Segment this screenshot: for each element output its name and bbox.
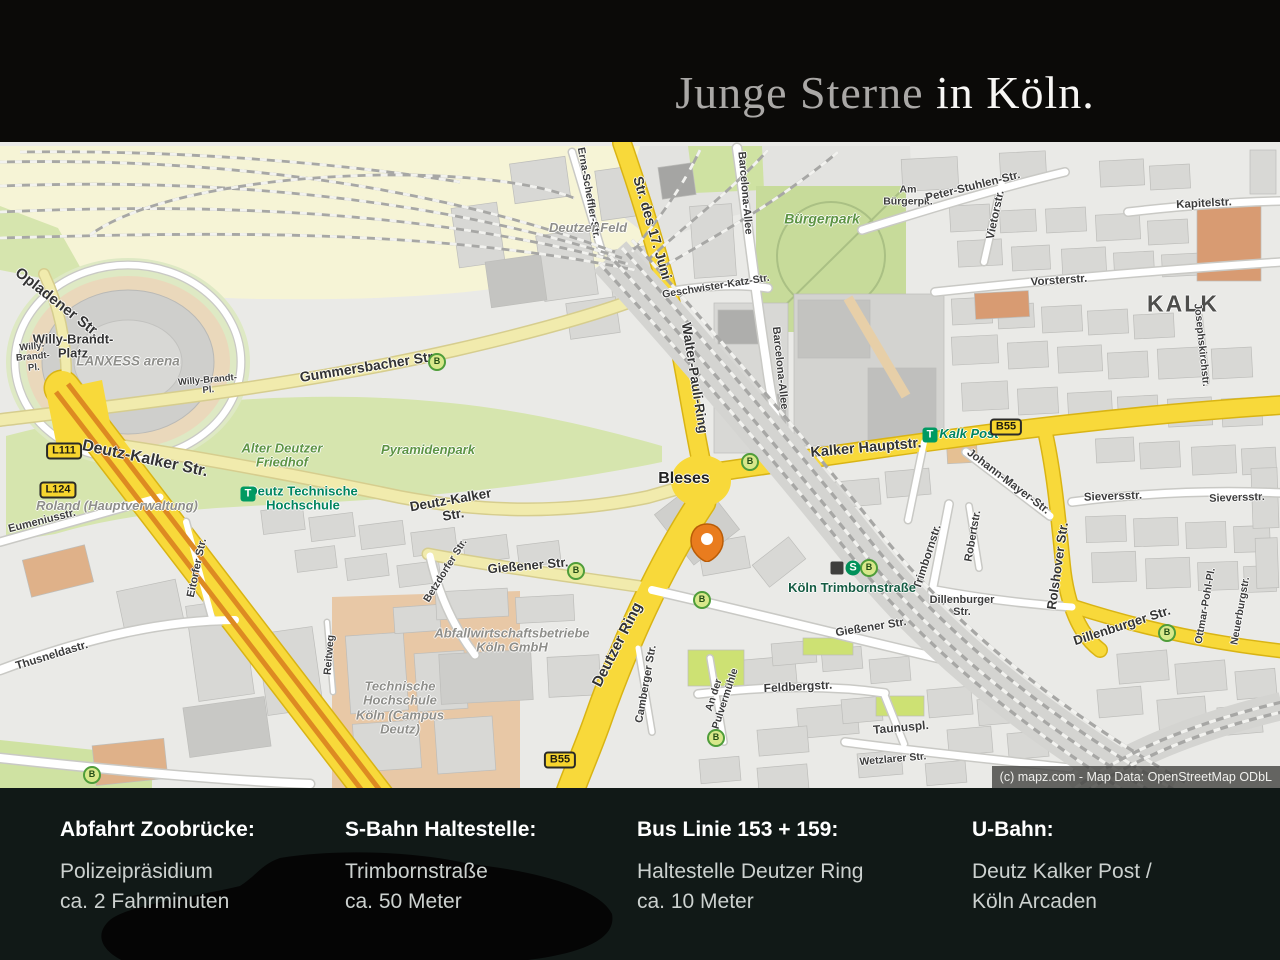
- bus-stop-icon: B: [860, 559, 878, 577]
- map-label: AbfallwirtschaftsbetriebeKöln GmbH: [434, 627, 589, 656]
- map-label: Neuerburgstr.: [1229, 576, 1252, 646]
- map-label: Walter-Pauli-Ring: [678, 322, 710, 435]
- title-bright: in Köln.: [924, 67, 1095, 118]
- map-label: Trimbornstr.: [912, 523, 945, 591]
- bus-stop-icon: B: [1158, 624, 1176, 642]
- map-label: Ottmar-Pohl-Pl.: [1194, 567, 1219, 645]
- bus-stop-icon: B: [707, 729, 725, 747]
- bus-stop-icon: B: [693, 591, 711, 609]
- map-label: Thusneldastr.: [14, 639, 89, 673]
- map-label: Barcelona-Allee: [770, 326, 791, 410]
- map-label: Deutz-Kalker Str.: [81, 437, 210, 481]
- map-label-layer: Opladener Str.Willy-Brandt-PlatzWilly-Br…: [0, 142, 1280, 788]
- map-label: Opladener Str.: [12, 265, 103, 341]
- bus-stop-icon: B: [741, 453, 759, 471]
- map-label: Rolshover Str.: [1045, 521, 1071, 610]
- map-label: Geschwister-Katz-Str.: [661, 273, 770, 301]
- map-label: LANXESS arena: [76, 355, 180, 370]
- sbahn-icon: S: [846, 561, 861, 576]
- map-label: Robertstr.: [963, 509, 984, 562]
- map-label: TechnischeHochschuleKöln (CampusDeutz): [356, 679, 444, 736]
- footer-line: ca. 10 Meter: [637, 890, 754, 914]
- map-label: Peter-Stuhlen-Str.: [924, 169, 1021, 205]
- map-label: Deutz TechnischeHochschule: [248, 485, 358, 514]
- map-canvas[interactable]: Opladener Str.Willy-Brandt-PlatzWilly-Br…: [0, 142, 1280, 788]
- page-title: Junge Sterne in Köln.: [675, 66, 1095, 119]
- map-label: DillenburgerStr.: [930, 594, 995, 618]
- map-label: Willy-Brandt-Pl.: [15, 341, 51, 375]
- map-label: Reitweg: [322, 634, 337, 675]
- map-label: Barcelona-Allee: [735, 151, 754, 235]
- footer-line: ca. 50 Meter: [345, 890, 462, 914]
- map-label: Deutz-KalkerStr.: [409, 486, 495, 530]
- map-attribution: (c) mapz.com - Map Data: OpenStreetMap O…: [992, 766, 1280, 788]
- footer: Abfahrt Zoobrücke:Polizeipräsidiumca. 2 …: [0, 788, 1280, 960]
- map-label: Camberger Str.: [633, 644, 659, 724]
- map-label: Kapitelstr.: [1176, 196, 1232, 212]
- tram-stop-icon: T: [923, 428, 938, 443]
- footer-line: Köln Arcaden: [972, 890, 1097, 914]
- route-shield: L111: [46, 443, 82, 460]
- footer-line: Polizeipräsidium: [60, 860, 213, 884]
- tram-stop-icon: T: [241, 487, 256, 502]
- station-icon: [831, 562, 844, 575]
- route-shield: B55: [990, 419, 1022, 436]
- map-label: Deutzer Feld: [549, 221, 627, 235]
- map-label: Gießener Str.: [835, 616, 908, 640]
- map-label: Sieversstr.: [1084, 490, 1143, 505]
- map-label: Dillenburger Str.: [1072, 604, 1173, 649]
- map-label: Willy-Brandt-Pl.: [178, 373, 239, 399]
- map-label: Eitorfer Str.: [185, 537, 209, 598]
- map-label: Kalker Hauptstr.: [810, 436, 922, 462]
- map-label: Köln Trimbornstraße: [788, 581, 916, 595]
- footer-line: Deutz Kalker Post /: [972, 860, 1152, 884]
- footer-line: Trimbornstraße: [345, 860, 488, 884]
- map-label: Vietorstr.: [985, 189, 1008, 240]
- route-shield: L124: [39, 482, 76, 499]
- bus-stop-icon: B: [567, 562, 585, 580]
- map-label: Str. des 17. Juni: [630, 175, 674, 282]
- footer-heading: S-Bahn Haltestelle:: [345, 818, 536, 842]
- bus-stop-icon: B: [428, 353, 446, 371]
- map-label: Gummersbacher Str.: [299, 349, 437, 386]
- footer-line: Haltestelle Deutzer Ring: [637, 860, 863, 884]
- map-label: Deutzer Ring: [590, 600, 647, 690]
- title-muted: Junge Sterne: [675, 67, 923, 118]
- map-label: Johann-Mayer-Str.: [964, 447, 1052, 517]
- map-label: Vorsterstr.: [1030, 273, 1087, 290]
- footer-heading: U-Bahn:: [972, 818, 1054, 842]
- map-label: Bürgerpark: [784, 211, 859, 226]
- map-label: Gießener Str.: [487, 555, 569, 576]
- map-label: An derPulvermühle: [699, 663, 740, 730]
- map-label: Betzdorfer Str.: [422, 537, 470, 604]
- footer-heading: Abfahrt Zoobrücke:: [60, 818, 255, 842]
- bus-stop-icon: B: [83, 766, 101, 784]
- route-shield: B55: [544, 752, 576, 769]
- map-label: Bleses: [658, 470, 710, 488]
- footer-line: ca. 2 Fahrminuten: [60, 890, 229, 914]
- map-label: KALK: [1147, 291, 1219, 316]
- map-label: Sieversstr.: [1209, 491, 1265, 505]
- map-label: Alter DeutzerFriedhof: [242, 442, 323, 471]
- map-label: Pyramidenpark: [381, 443, 475, 457]
- slide: Junge Sterne in Köln. Opladener Str.Will…: [0, 0, 1280, 960]
- map-label: Wetzlarer Str.: [859, 751, 927, 768]
- map-label: Feldbergstr.: [763, 679, 832, 696]
- footer-heading: Bus Linie 153 + 159:: [637, 818, 838, 842]
- map-label: Taunuspl.: [873, 719, 930, 737]
- header: Junge Sterne in Köln.: [0, 0, 1280, 142]
